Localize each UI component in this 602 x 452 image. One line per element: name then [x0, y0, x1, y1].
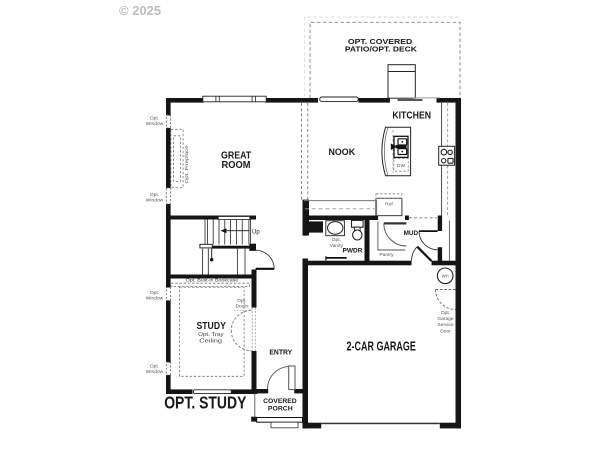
svg-text:Window: Window	[146, 198, 164, 204]
svg-text:Opt.: Opt.	[150, 115, 159, 121]
svg-text:NOOK: NOOK	[329, 147, 356, 158]
svg-text:Opt. Fireplace: Opt. Fireplace	[184, 145, 190, 183]
svg-text:Window: Window	[146, 296, 164, 302]
svg-text:Opt.: Opt.	[150, 290, 159, 296]
svg-text:ROOM: ROOM	[222, 160, 251, 171]
svg-text:PATIO/OPT. DECK: PATIO/OPT. DECK	[345, 46, 417, 53]
svg-text:Opt.: Opt.	[150, 192, 159, 198]
svg-text:KITCHEN: KITCHEN	[392, 110, 431, 121]
svg-text:DW: DW	[397, 163, 406, 169]
svg-text:STUDY: STUDY	[196, 321, 226, 332]
svg-text:MUD: MUD	[404, 230, 419, 237]
svg-text:Door: Door	[440, 328, 451, 334]
svg-text:Window: Window	[146, 369, 164, 375]
svg-text:Doors: Doors	[235, 304, 249, 310]
svg-text:Vanity: Vanity	[330, 243, 344, 249]
svg-text:Opt. Built-in Bookcase: Opt. Built-in Bookcase	[186, 278, 239, 283]
svg-text:© 2025: © 2025	[119, 3, 161, 18]
svg-text:Window: Window	[146, 121, 164, 127]
svg-text:WH: WH	[442, 273, 449, 278]
svg-text:Opt. Tray: Opt. Tray	[198, 332, 224, 338]
svg-text:Opt.: Opt.	[332, 237, 341, 243]
svg-text:Ref: Ref	[385, 201, 393, 207]
svg-text:Up: Up	[252, 229, 260, 235]
svg-text:Ceiling: Ceiling	[199, 339, 222, 345]
svg-text:OPT. STUDY: OPT. STUDY	[164, 392, 247, 412]
svg-text:PORCH: PORCH	[268, 405, 293, 412]
svg-text:Opt.: Opt.	[441, 310, 450, 316]
svg-text:Pantry: Pantry	[379, 252, 394, 258]
svg-text:COVERED: COVERED	[263, 398, 297, 405]
svg-text:Service: Service	[437, 322, 454, 328]
svg-text:Opt.: Opt.	[237, 298, 246, 304]
svg-text:OPT. COVERED: OPT. COVERED	[348, 39, 412, 46]
svg-text:ENTRY: ENTRY	[269, 348, 292, 356]
svg-text:PWDR: PWDR	[343, 247, 363, 254]
svg-text:Opt.: Opt.	[150, 364, 159, 370]
svg-text:2-CAR GARAGE: 2-CAR GARAGE	[347, 339, 416, 353]
svg-text:Garage: Garage	[437, 316, 454, 322]
